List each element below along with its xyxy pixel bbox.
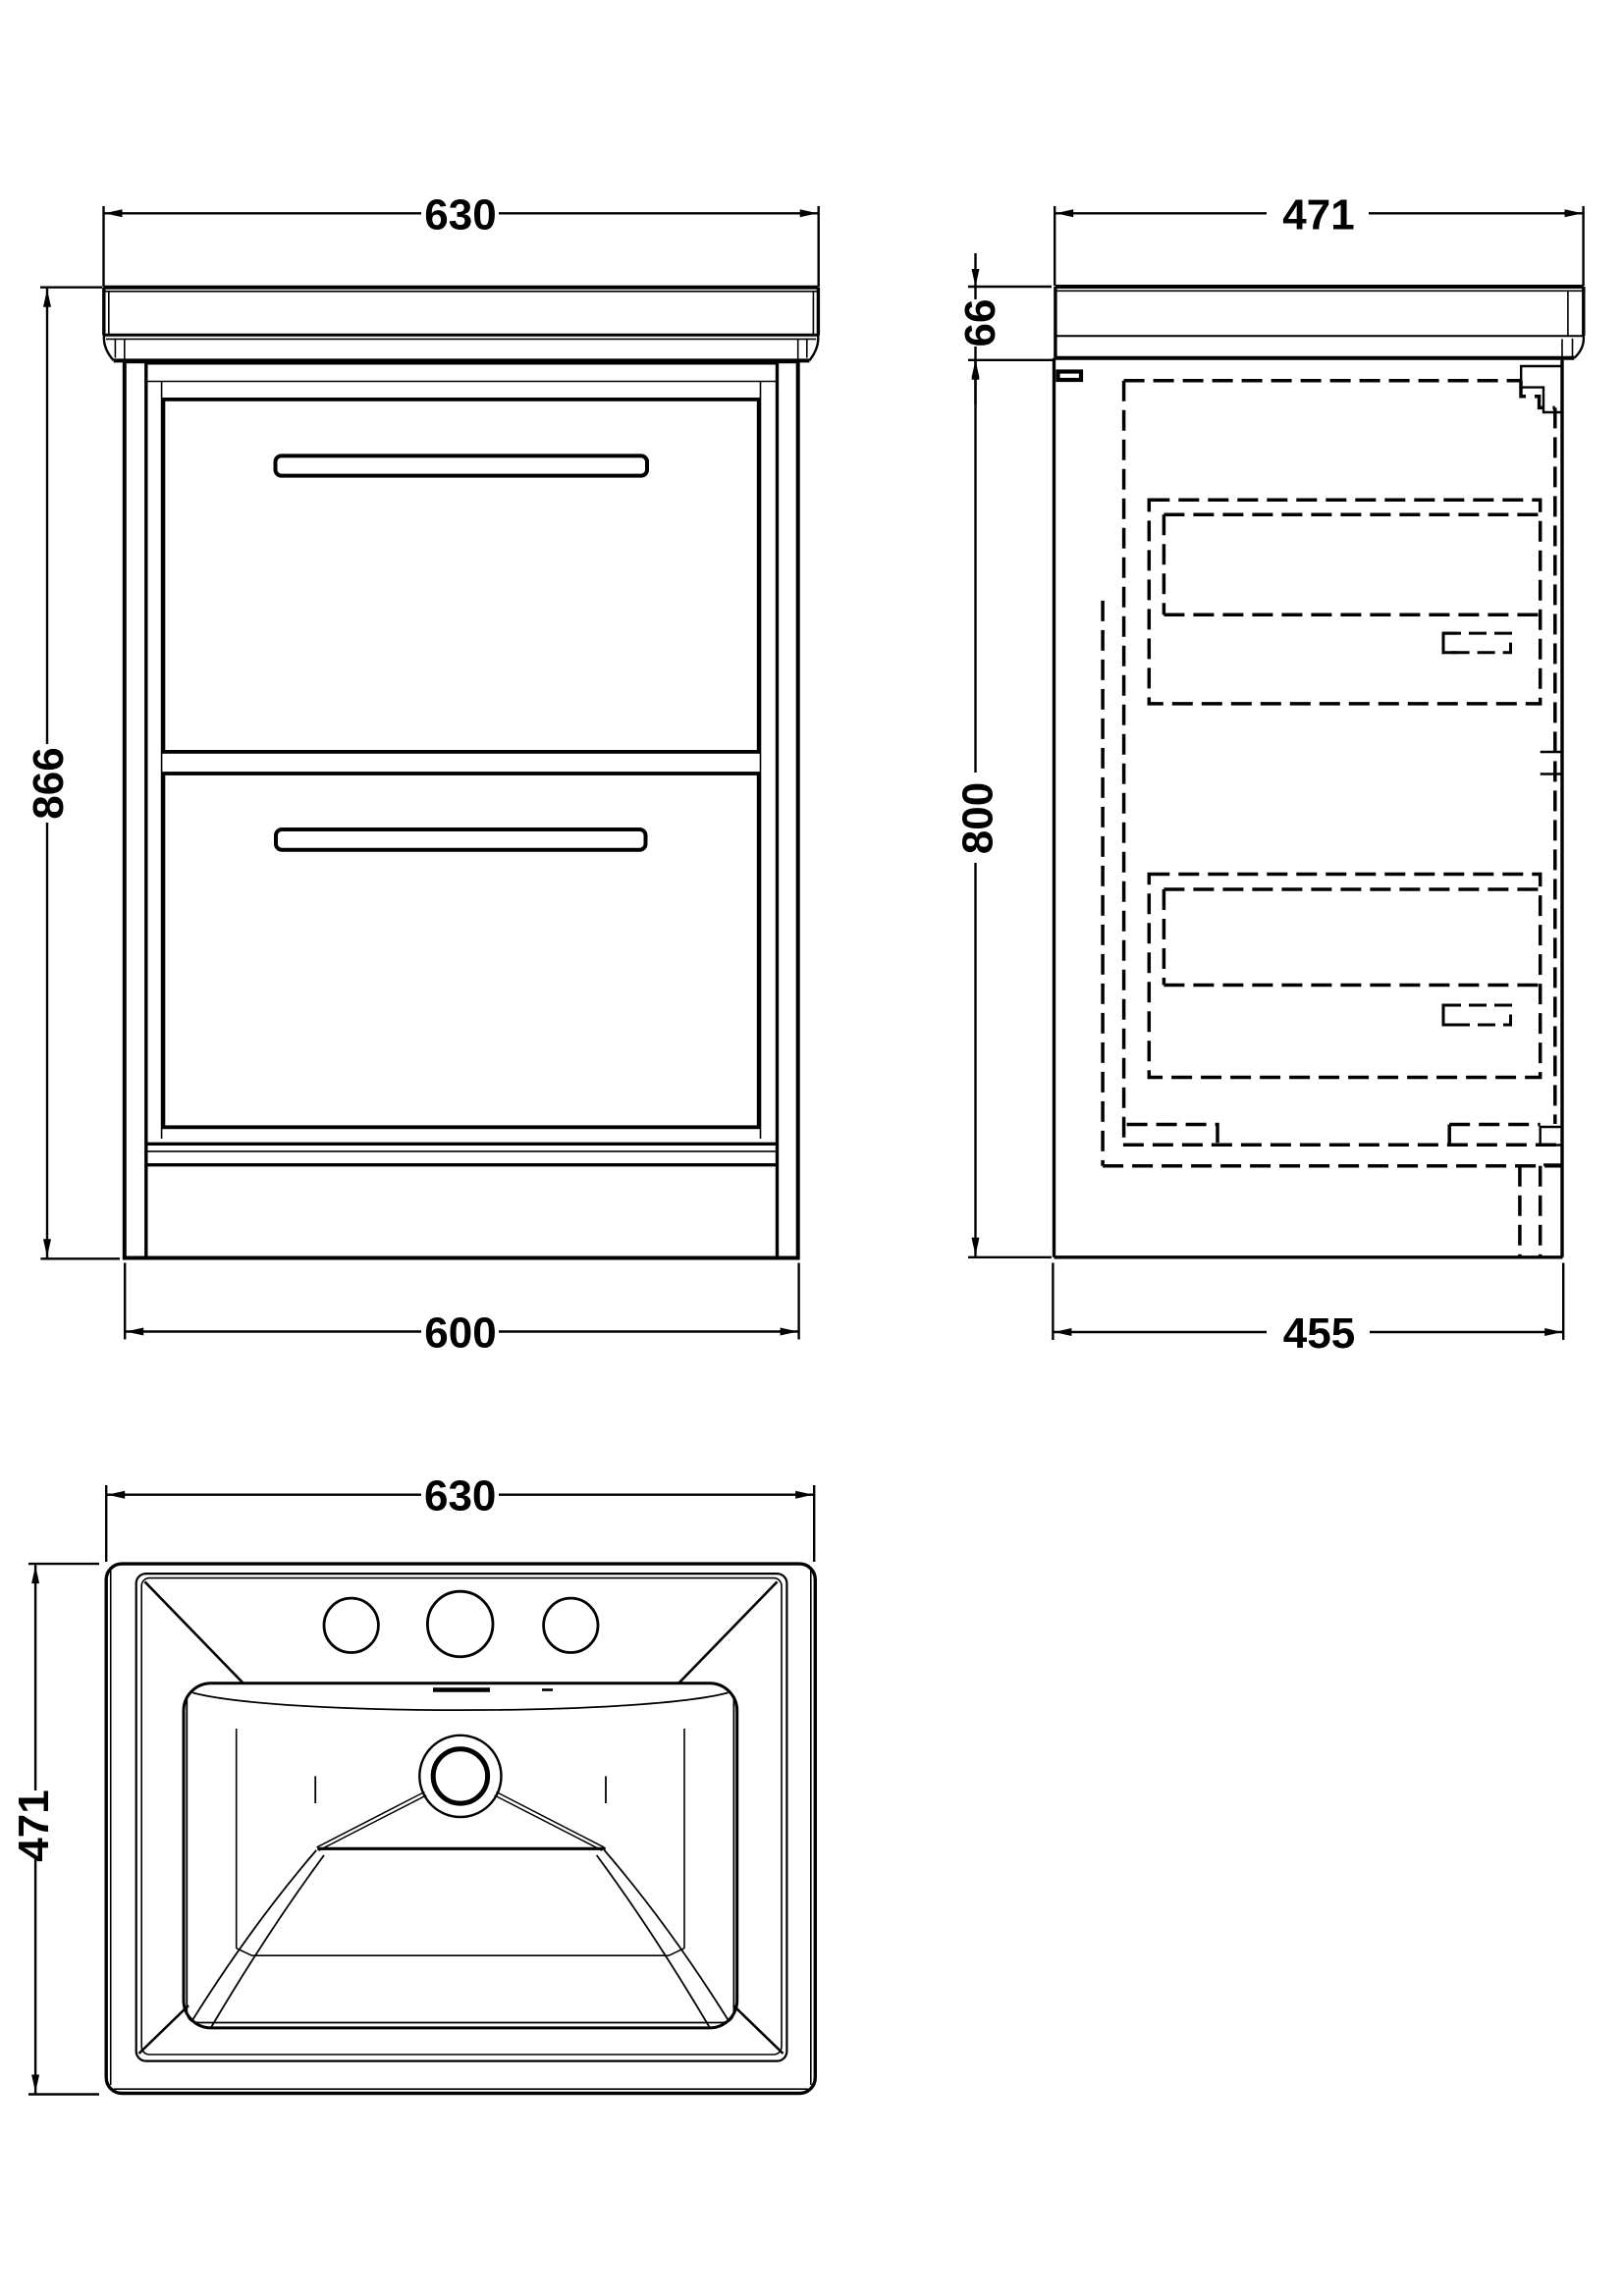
svg-text:600: 600 xyxy=(424,1309,496,1358)
svg-text:455: 455 xyxy=(1283,1309,1355,1358)
svg-text:630: 630 xyxy=(424,1472,496,1521)
svg-text:866: 866 xyxy=(25,747,73,819)
svg-text:471: 471 xyxy=(1282,190,1354,239)
svg-text:66: 66 xyxy=(956,299,1004,347)
svg-text:800: 800 xyxy=(954,782,1002,854)
svg-text:630: 630 xyxy=(424,190,496,239)
svg-text:471: 471 xyxy=(10,1789,58,1861)
